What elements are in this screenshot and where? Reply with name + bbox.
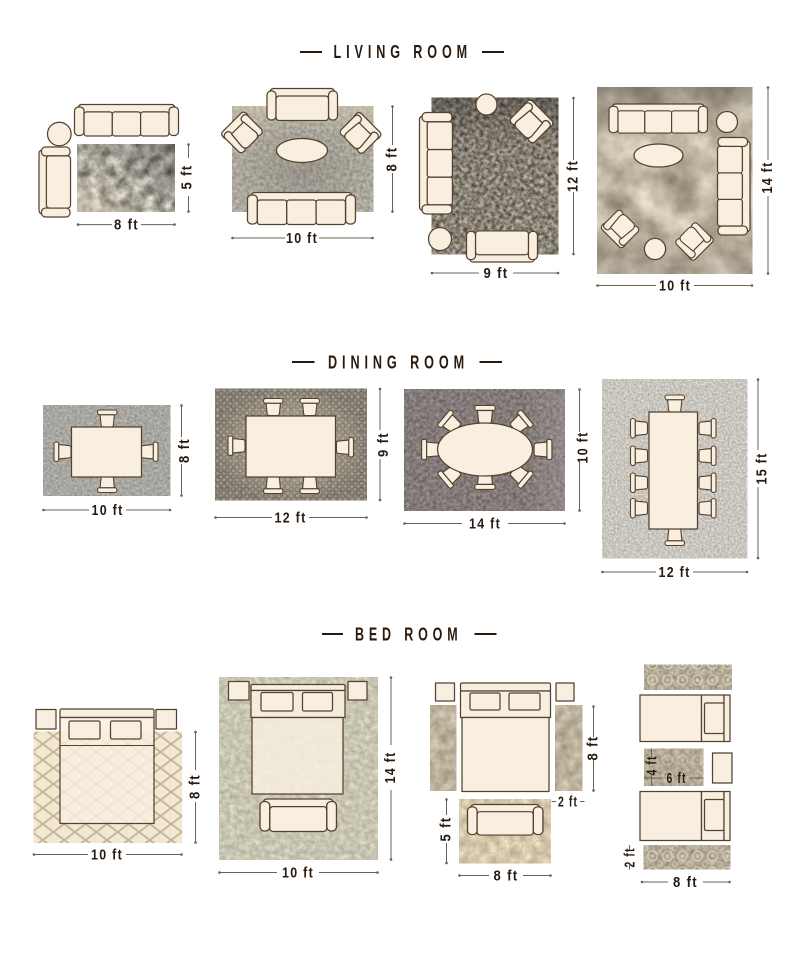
svg-text:10 ft: 10 ft — [576, 432, 592, 464]
svg-text:BED ROOM: BED ROOM — [355, 624, 463, 644]
svg-text:6 ft: 6 ft — [667, 771, 687, 787]
svg-text:12 ft: 12 ft — [659, 565, 691, 581]
svg-text:5 ft: 5 ft — [439, 817, 455, 842]
svg-text:5 ft: 5 ft — [180, 165, 196, 190]
svg-text:10 ft: 10 ft — [659, 279, 691, 295]
svg-text:2 ft: 2 ft — [558, 795, 578, 811]
svg-text:14 ft: 14 ft — [760, 162, 776, 194]
svg-text:14 ft: 14 ft — [469, 517, 501, 533]
svg-text:8 ft: 8 ft — [494, 869, 519, 885]
svg-text:10 ft: 10 ft — [92, 503, 124, 519]
svg-text:8 ft: 8 ft — [586, 736, 602, 761]
svg-text:4 ft: 4 ft — [645, 756, 661, 776]
svg-text:10 ft: 10 ft — [91, 848, 123, 864]
svg-text:10 ft: 10 ft — [282, 866, 314, 882]
svg-text:8 ft: 8 ft — [114, 218, 139, 234]
svg-text:8 ft: 8 ft — [385, 147, 401, 172]
svg-text:8 ft: 8 ft — [673, 875, 698, 891]
svg-text:12 ft: 12 ft — [566, 160, 582, 192]
svg-text:9 ft: 9 ft — [484, 266, 509, 282]
svg-text:8 ft: 8 ft — [177, 438, 193, 463]
svg-text:12 ft: 12 ft — [275, 511, 307, 527]
svg-text:9 ft: 9 ft — [376, 432, 392, 457]
svg-text:DINING ROOM: DINING ROOM — [328, 352, 469, 372]
svg-text:2 ft: 2 ft — [623, 848, 639, 868]
svg-text:14 ft: 14 ft — [383, 752, 399, 784]
svg-text:LIVING ROOM: LIVING ROOM — [334, 42, 473, 62]
svg-text:10 ft: 10 ft — [286, 231, 318, 247]
svg-text:15 ft: 15 ft — [755, 453, 771, 485]
svg-text:8 ft: 8 ft — [188, 774, 204, 799]
